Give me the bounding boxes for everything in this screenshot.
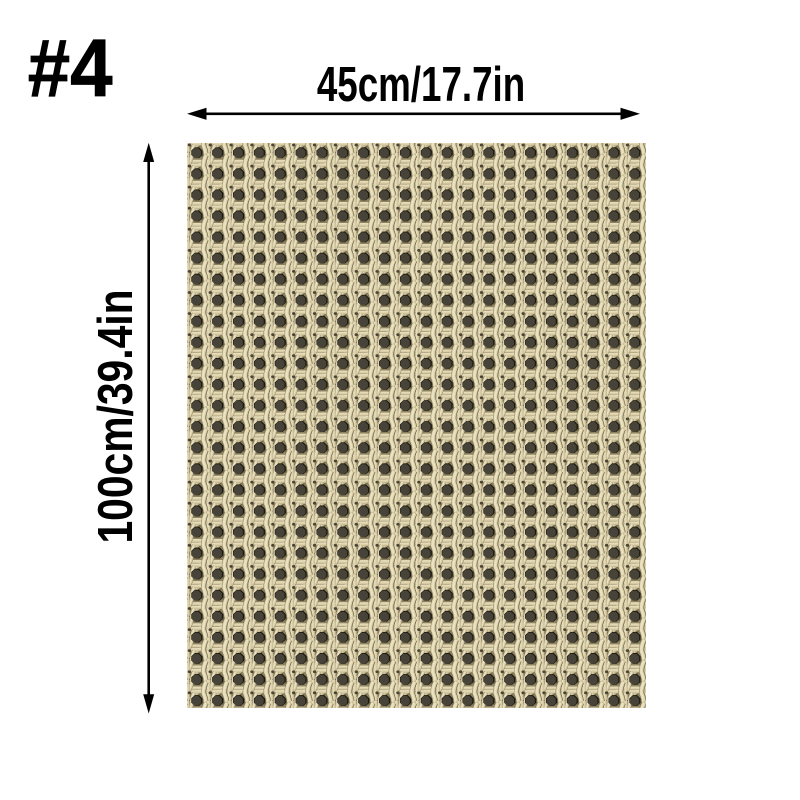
svg-text:100cm/39.4in: 100cm/39.4in	[87, 289, 142, 543]
svg-text:#4: #4	[28, 21, 113, 113]
svg-text:45cm/17.7in: 45cm/17.7in	[317, 58, 525, 112]
